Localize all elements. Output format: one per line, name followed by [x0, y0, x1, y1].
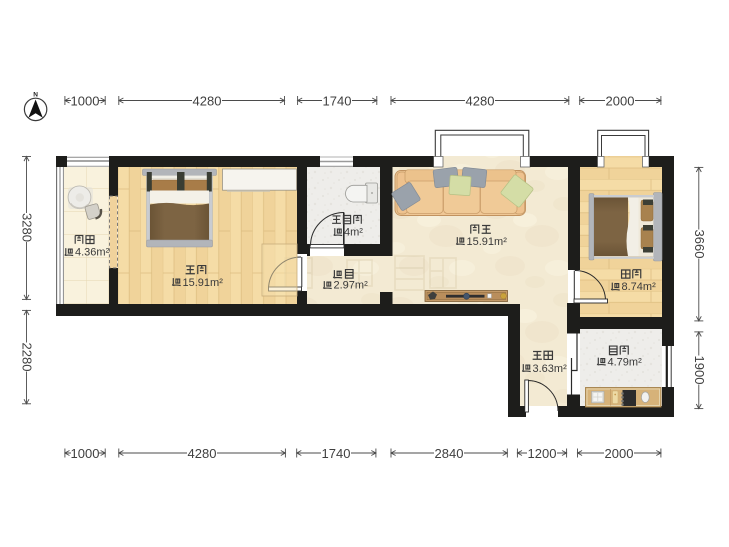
svg-text:2840: 2840: [435, 446, 464, 461]
svg-text:1000: 1000: [71, 93, 100, 108]
svg-text:1200: 1200: [528, 446, 557, 461]
svg-text:1740: 1740: [323, 93, 352, 108]
svg-text:4.79m²: 4.79m²: [608, 356, 643, 368]
svg-text:2.97m²: 2.97m²: [334, 280, 369, 292]
svg-text:1740: 1740: [322, 446, 351, 461]
svg-text:15.91m²: 15.91m²: [183, 277, 224, 289]
svg-text:2000: 2000: [605, 446, 634, 461]
svg-text:3280: 3280: [20, 213, 35, 242]
svg-text:15.91m²: 15.91m²: [467, 236, 508, 248]
svg-text:3.63m²: 3.63m²: [533, 363, 568, 375]
svg-text:3660: 3660: [692, 230, 707, 259]
svg-text:8.74m²: 8.74m²: [622, 281, 657, 293]
svg-text:2000: 2000: [606, 93, 635, 108]
svg-text:N: N: [33, 92, 38, 99]
svg-text:4280: 4280: [193, 93, 222, 108]
svg-text:1900: 1900: [692, 356, 707, 385]
svg-text:4280: 4280: [188, 446, 217, 461]
svg-text:4m²: 4m²: [344, 227, 363, 239]
svg-text:1000: 1000: [71, 446, 100, 461]
svg-text:2280: 2280: [20, 343, 35, 372]
svg-text:4.36m²: 4.36m²: [75, 247, 110, 259]
svg-text:4280: 4280: [466, 93, 495, 108]
